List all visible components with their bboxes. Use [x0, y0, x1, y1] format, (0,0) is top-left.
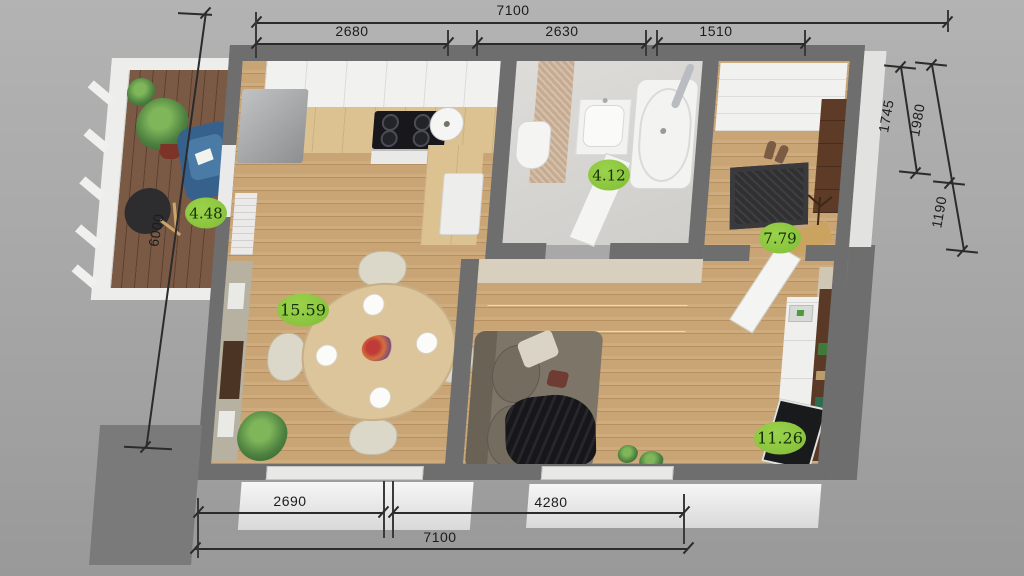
- dim-label: 4280: [534, 494, 567, 510]
- dim-line: [393, 512, 684, 514]
- laptop-logo: [797, 310, 804, 316]
- bedroom-wardrobe: [485, 281, 689, 332]
- dim-line: [657, 43, 805, 45]
- hallway-wall-south: [703, 245, 750, 261]
- sink-drain: [444, 121, 450, 127]
- wall-shelf: [227, 283, 245, 309]
- plate: [416, 331, 439, 355]
- window-sill-outer: [526, 484, 821, 528]
- burner: [413, 114, 431, 131]
- fridge: [237, 89, 309, 163]
- kitchen-base-cabinet: [439, 173, 484, 235]
- dim-ext: [197, 498, 199, 558]
- dim-label: 2680: [335, 23, 368, 39]
- faucet: [602, 98, 607, 103]
- dim-label: 1190: [928, 195, 949, 229]
- floor-plan-render: 7100 2680 2630 1510 1745 1980 1190: [0, 0, 1024, 576]
- hallway-wall-south: [805, 245, 849, 261]
- wall-shelf: [217, 411, 235, 437]
- area-badge-living-room: 15.59: [277, 294, 329, 327]
- bathroom-south-wall-face: [477, 259, 703, 283]
- dim-label: 2630: [545, 23, 578, 39]
- area-badge-balcony: 4.48: [185, 198, 227, 229]
- burner: [381, 114, 399, 131]
- area-badge-bedroom: 11.26: [754, 422, 806, 455]
- window-living: [266, 466, 424, 480]
- plate: [362, 293, 385, 317]
- bathtub-inner: [635, 88, 694, 182]
- wash-basin: [582, 105, 625, 147]
- bathroom-wall-south: [485, 243, 546, 259]
- dim-line: [198, 512, 384, 514]
- area-badge-bathroom: 4.12: [588, 160, 630, 191]
- wardrobe-seam: [487, 305, 687, 306]
- dim-label: 1980: [906, 102, 928, 137]
- pillow: [546, 369, 569, 388]
- dim-ext: [947, 10, 949, 32]
- bathtub: [629, 79, 700, 189]
- dim-label: 2690: [273, 493, 306, 509]
- flower-centerpiece: [361, 334, 394, 363]
- laptop: [788, 305, 813, 322]
- coat-rack-icon: [799, 191, 838, 232]
- window-bedroom: [541, 466, 674, 480]
- dim-ext: [255, 12, 257, 58]
- bathroom-vanity: [575, 99, 631, 155]
- area-badge-hallway: 7.79: [759, 223, 801, 254]
- blanket: [504, 390, 596, 473]
- doormat-pattern: [735, 168, 804, 225]
- dim-ext: [683, 494, 685, 544]
- dim-line: [195, 548, 688, 550]
- dim-label: 1510: [699, 23, 732, 39]
- dim-line: [256, 43, 448, 45]
- dim-line: [477, 43, 646, 45]
- doormat: [730, 162, 809, 229]
- wall-top: [229, 45, 865, 61]
- plate: [315, 343, 338, 367]
- plate: [369, 386, 392, 410]
- burner: [380, 130, 398, 147]
- dim-label: 7100: [496, 2, 529, 18]
- bathroom-wall-south: [609, 243, 704, 259]
- apartment: [196, 45, 865, 480]
- dim-label: 7100: [423, 529, 456, 545]
